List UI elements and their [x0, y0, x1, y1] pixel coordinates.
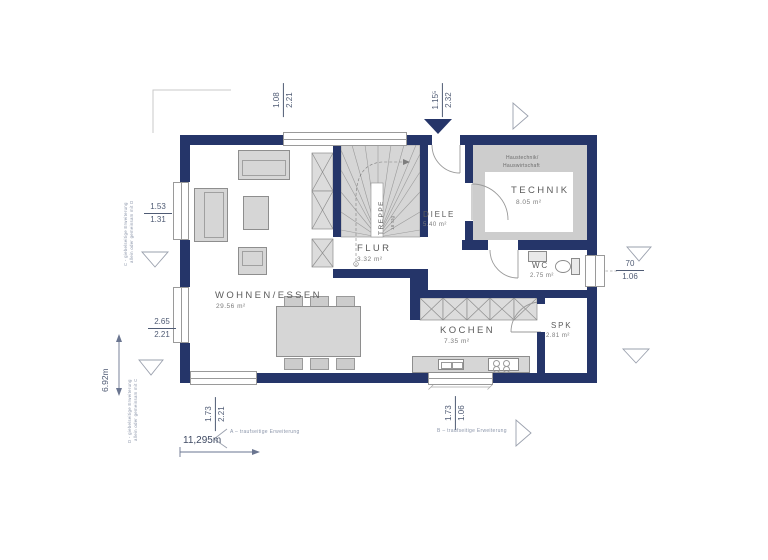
wall-segment: [462, 240, 488, 250]
armchair: [238, 247, 267, 275]
room-label-technik: TECHNIK: [511, 185, 570, 196]
wall-segment: [537, 332, 545, 383]
wall-segment: [428, 290, 587, 298]
toilet-tank: [571, 258, 580, 275]
roof-corner-line: [153, 90, 231, 133]
wall-segment: [180, 343, 190, 383]
room-label-wohnen: WOHNEN/ESSEN: [215, 290, 322, 301]
kitchen-counter: [412, 356, 530, 373]
room-area-flur: 3.32 m²: [357, 256, 383, 263]
room-label-spk: SPK: [551, 321, 572, 330]
wall-segment: [465, 145, 473, 183]
technik-note-line1: Haustechnik/: [506, 155, 539, 161]
coffee-table: [243, 196, 269, 230]
dining-chair: [336, 358, 355, 370]
annotation-c-line2: allein oder gemeinsam mit D: [129, 163, 134, 263]
kitchen-window: [428, 371, 493, 385]
dim-left-upper: 1.531.31: [144, 202, 172, 224]
sink: [438, 359, 464, 370]
annotation-d-line2: allein oder gemeinsam mit C: [133, 385, 138, 441]
wall-segment: [180, 135, 285, 145]
wall-segment: [410, 298, 420, 320]
dim-top-right: 1.15⁵2.32: [431, 83, 453, 117]
stove: [488, 358, 519, 371]
wall-segment: [537, 298, 545, 304]
room-label-kochen: KOCHEN: [440, 325, 495, 336]
room-area-spk: 2.81 m²: [546, 333, 570, 339]
wall-segment: [493, 373, 597, 383]
technik-note-line2: Hauswirtschaft: [503, 163, 540, 169]
floorplan-canvas: WOHNEN/ESSEN 29.56 m² FLUR 3.32 m² DIELE…: [0, 0, 768, 560]
window: [283, 132, 407, 146]
sofa: [238, 150, 290, 180]
wall-segment: [405, 135, 432, 145]
wall-segment: [180, 135, 190, 182]
plan-linework-layer: [0, 0, 768, 560]
window: [173, 182, 189, 240]
sofa: [194, 188, 228, 242]
terrace-window: [190, 371, 257, 385]
room-label-diele: DIELE: [423, 210, 455, 219]
dining-chair: [310, 358, 329, 370]
wall-segment: [180, 240, 190, 287]
dining-table: [276, 306, 361, 357]
dim-right-mid: 701.06: [616, 259, 644, 281]
window: [585, 255, 605, 287]
wall-segment: [460, 135, 597, 145]
room-label-wc: WC: [532, 261, 549, 270]
annotation-c-line1: C - giebelseitige Erweiterung: [123, 156, 128, 266]
annotation-d-line1: D - giebelseitige Erweiterung: [127, 381, 132, 443]
wall-segment: [587, 285, 597, 383]
room-area-wc: 2.75 m²: [530, 273, 554, 279]
wall-segment: [518, 240, 587, 250]
dim-top-left: 1.082.21: [272, 83, 294, 117]
room-area-technik: 8.05 m²: [516, 199, 542, 206]
dim-bottom-right: 1.731.06: [444, 396, 466, 430]
kitchen-tall-cabinets: [420, 298, 537, 320]
annotation-a: A – traufseitige Erweiterung: [230, 429, 300, 435]
dining-chair: [284, 358, 303, 370]
dim-bottom-left: 1.732.21: [204, 397, 226, 431]
annotation-b: B – traufseitige Erweiterung: [437, 428, 507, 434]
room-label-flur: FLUR: [357, 243, 391, 254]
dim-left-lower: 2.652.21: [148, 317, 176, 339]
wall-segment: [333, 145, 341, 237]
wall-segment: [465, 221, 473, 242]
room-area-kochen: 7.35 m²: [444, 338, 470, 345]
room-area-wohnen: 29.56 m²: [216, 303, 246, 310]
total-width-label: 11,295m: [183, 435, 221, 446]
toilet-bowl: [556, 261, 571, 273]
room-area-diele: 5.40 m²: [423, 222, 447, 228]
total-depth-label: 6.92m: [100, 342, 110, 392]
stair-steps-note: 18 Stg: [390, 194, 395, 230]
wall-segment: [257, 373, 428, 383]
room-label-treppe: TREPPE: [378, 185, 385, 235]
entrance-marker-triangle: [424, 119, 452, 134]
wall-segment: [587, 135, 597, 255]
wardrobe-cabinets: [312, 153, 333, 267]
wall-segment: [410, 269, 428, 298]
